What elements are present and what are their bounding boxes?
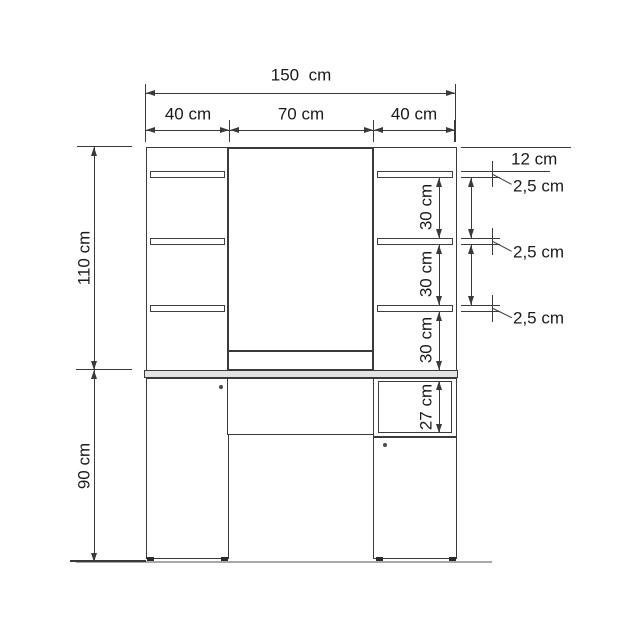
dim-label-middle-width: 70 cm (278, 106, 324, 123)
left-shelf-3 (150, 305, 225, 312)
right-upper-cabinet (373, 147, 457, 371)
arrowhead (91, 370, 97, 379)
dim-label-left-width: 40 cm (165, 106, 211, 123)
extension-line-left-top (77, 146, 132, 147)
right-cabinet-divider (373, 436, 457, 438)
leader-line-shelf2 (493, 241, 512, 252)
extension-line-shelf3-top (461, 305, 500, 306)
dim-label-shelf-spacing-3: 30 cm (418, 317, 435, 363)
arrowhead (146, 127, 155, 133)
dim-label-shelf-spacing-1: 30 cm (418, 184, 435, 230)
dim-label-shelf-thickness-3: 2,5 cm (513, 310, 564, 327)
arrowhead (146, 90, 155, 96)
left-door (146, 378, 229, 559)
dim-line-sections (146, 130, 455, 131)
dim-line-total-width (146, 93, 455, 94)
arrowhead (468, 296, 474, 305)
extension-line-top-right (455, 84, 456, 142)
leader-line-shelf1 (493, 174, 512, 185)
arrowhead (364, 127, 373, 133)
dim-label-compartment-height: 27 cm (418, 384, 435, 430)
arrowhead (468, 245, 474, 254)
arrowhead (446, 90, 455, 96)
dim-label-top-gap: 12 cm (511, 151, 557, 168)
extension-line-shelf2-top (461, 238, 500, 239)
mirror-panel (227, 147, 374, 371)
right-shelf-2 (377, 238, 453, 245)
arrowhead (436, 229, 442, 238)
arrowhead (436, 245, 442, 254)
dim-label-shelf-thickness-1: 2,5 cm (513, 178, 564, 195)
extension-line-left-bottom (70, 560, 146, 562)
extension-line-left-middle (76, 369, 132, 370)
dim-label-upper-height: 110 cm (76, 231, 93, 286)
arrowhead (91, 361, 97, 370)
extension-line-shelf1-bottom (461, 177, 500, 178)
tabletop (144, 370, 458, 378)
left-upper-cabinet (146, 147, 229, 371)
arrowhead (436, 296, 442, 305)
right-shelf-1 (377, 171, 453, 178)
extension-line-shelf1-top (461, 171, 550, 172)
dim-label-shelf-thickness-2: 2,5 cm (513, 244, 564, 261)
dim-label-right-width: 40 cm (391, 106, 437, 123)
dim-label-shelf-spacing-2: 30 cm (418, 251, 435, 297)
left-shelf-2 (150, 238, 225, 245)
furniture-dimension-diagram: 150 cm 40 cm 70 cm 40 cm 110 cm 90 cm 12… (0, 0, 636, 636)
arrowhead (91, 553, 97, 562)
arrowhead (91, 147, 97, 156)
arrowhead (436, 424, 442, 433)
arrowhead (436, 312, 442, 321)
extension-line-right-top (461, 147, 571, 148)
left-door-knob (219, 385, 223, 389)
right-shelf-3 (377, 305, 453, 312)
arrowhead (230, 127, 239, 133)
arrowhead (468, 229, 474, 238)
center-drawer (227, 378, 374, 435)
arrowhead (220, 127, 229, 133)
mirror-bottom-edge (229, 350, 372, 352)
arrowhead (436, 361, 442, 370)
dim-label-total-width: 150 cm (271, 67, 331, 84)
extension-line-shelf2-bottom (461, 244, 500, 245)
left-shelf-1 (150, 171, 225, 178)
dim-line-heights (94, 147, 95, 562)
extension-line-shelf3-bottom (461, 311, 500, 312)
arrowhead (374, 127, 383, 133)
arrowhead (436, 381, 442, 390)
right-door-knob (383, 443, 387, 447)
arrowhead (436, 178, 442, 187)
arrowhead (446, 127, 455, 133)
leader-line-shelf3 (493, 308, 512, 318)
dim-label-lower-height: 90 cm (76, 443, 93, 489)
arrowhead (468, 178, 474, 187)
